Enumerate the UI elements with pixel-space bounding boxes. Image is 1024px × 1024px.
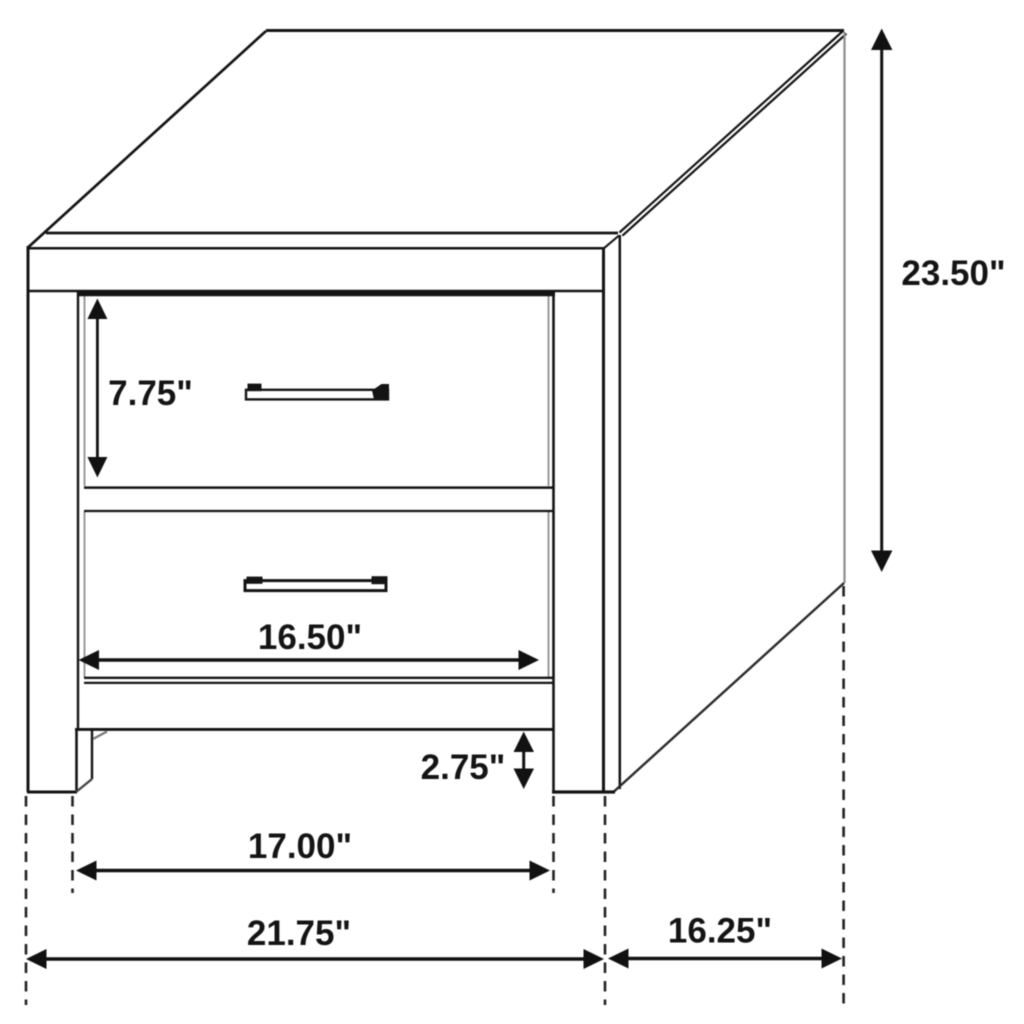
svg-text:17.00": 17.00" — [248, 827, 352, 866]
svg-text:2.75": 2.75" — [421, 748, 506, 787]
svg-text:21.75": 21.75" — [247, 914, 351, 953]
svg-text:7.75": 7.75" — [108, 374, 193, 413]
svg-text:23.50": 23.50" — [901, 254, 1005, 293]
svg-text:16.50": 16.50" — [258, 618, 362, 657]
svg-text:16.25": 16.25" — [668, 912, 772, 951]
